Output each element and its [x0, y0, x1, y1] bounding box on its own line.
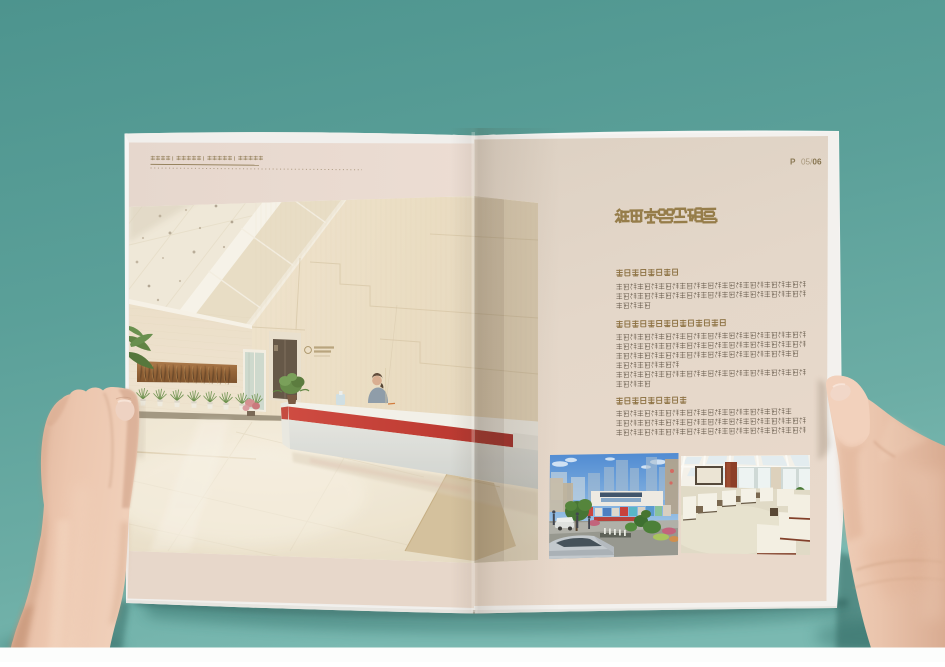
- svg-text:P: P: [790, 158, 796, 167]
- svg-text:05/06: 05/06: [801, 158, 822, 167]
